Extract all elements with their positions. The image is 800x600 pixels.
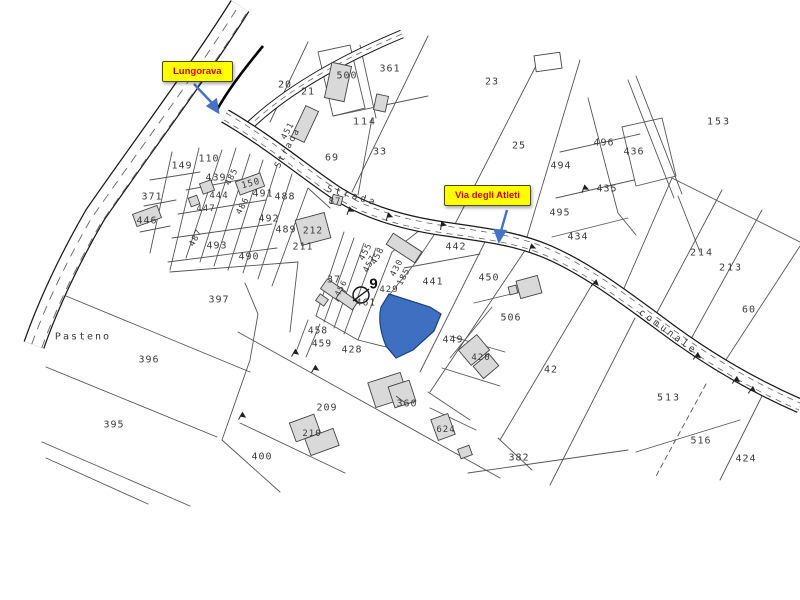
building-506-cluster	[516, 275, 542, 298]
building-150	[235, 173, 264, 195]
atleti-arrow-line	[501, 210, 507, 231]
road-lungorava	[30, 6, 263, 353]
building-lane-3	[316, 294, 329, 306]
building-212	[295, 213, 331, 246]
parcel-boundaries	[42, 36, 800, 506]
road-network	[30, 6, 800, 410]
building-small-4	[458, 445, 473, 459]
road-strada-comunale	[224, 113, 800, 410]
map-canvas	[0, 0, 800, 600]
callout-via-degli-atleti[interactable]: Via degli Atleti	[444, 185, 531, 206]
callout-lungorava[interactable]: Lungorava	[162, 61, 233, 82]
building-624	[431, 414, 455, 441]
building-506-small	[508, 285, 518, 295]
cadastral-map: 2021500361231146933254964361534944354954…	[0, 0, 800, 600]
building-lane-4	[386, 233, 422, 262]
building-small-1	[373, 94, 388, 112]
building-87	[331, 194, 343, 205]
callout-arrows	[194, 84, 507, 241]
building-371	[133, 205, 162, 226]
building-451	[291, 106, 318, 143]
building-small-3	[188, 195, 200, 207]
building-small-2	[199, 180, 214, 194]
building-outline-1	[534, 52, 562, 71]
lungorava-arrow-line	[194, 84, 212, 103]
